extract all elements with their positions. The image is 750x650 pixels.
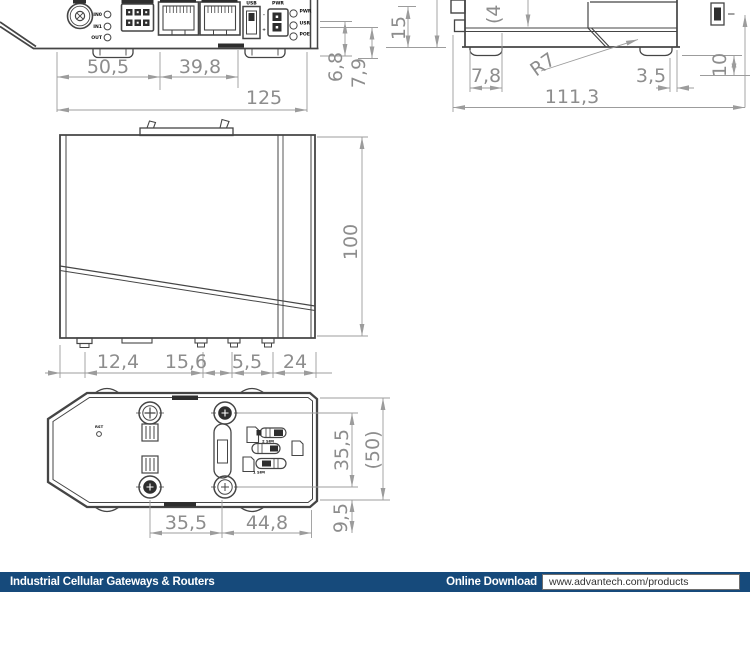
usb-port: USB — [243, 1, 260, 39]
vent-grilles — [142, 424, 158, 473]
dim-side-foot-right: 3,5 — [636, 65, 666, 87]
usb-port-label: USB — [246, 1, 257, 7]
screw-bottom-left — [139, 476, 161, 498]
sim-card-icon — [292, 441, 303, 456]
dim-front-total: 125 — [246, 87, 282, 109]
reset-button: RST — [95, 424, 104, 436]
dim-top-seg1: 12,4 — [97, 351, 139, 373]
center-slot — [214, 424, 231, 478]
bottom-slot — [218, 44, 244, 48]
top-view: 100 12,4 15,6 5,5 24 — [45, 120, 368, 379]
screw-top-left — [139, 402, 161, 424]
dim-bottom-screws-h1: 35,5 — [165, 512, 207, 534]
dim-bottom-screws-v: 35,5 — [331, 429, 353, 471]
rubber-feet-bumps — [95, 389, 264, 512]
dim-top-height: 100 — [340, 224, 362, 260]
top-view-bottom-stubs — [77, 338, 274, 348]
dim-top-seg2: 15,6 — [165, 351, 207, 373]
screw-bottom-right — [214, 476, 236, 498]
dim-front-h2: 7,9 — [348, 58, 370, 88]
port-label-strip — [73, 0, 86, 4]
front-foot-right — [245, 49, 285, 58]
reset-label: RST — [95, 424, 104, 429]
io-label-out: OUT — [91, 35, 103, 41]
dim-side-total: 111,3 — [545, 86, 599, 108]
led-label-poe: POE — [300, 32, 310, 38]
sim1-label: 1 SIM — [253, 470, 265, 475]
dim-front-seg2: 39,8 — [179, 56, 221, 78]
status-leds: PWR USR POE — [290, 9, 312, 41]
ethernet-port-eth0 — [159, 0, 199, 35]
antenna-connector — [68, 0, 93, 29]
dim-bottom-screws-h2: 44,8 — [246, 512, 288, 534]
footer-url-text: www.advantech.com/products — [543, 575, 739, 589]
dimension-drawing: IN0 IN1 OUT — [0, 0, 750, 650]
terminal-block-connector — [122, 0, 154, 31]
side-sim-slot-detail — [711, 3, 735, 25]
dim-front-h1: 6,8 — [325, 52, 347, 82]
label-bar-top — [172, 396, 198, 401]
ethernet-port-eth1 — [200, 0, 240, 35]
side-foot-left — [470, 47, 502, 56]
screw-top-right — [214, 402, 236, 424]
port-label-strip — [202, 0, 238, 3]
side-view-dimensions: (4 7,8 3,5 R7 111,3 10 — [453, 0, 750, 112]
dim-side-radius: R7 — [526, 49, 559, 82]
minus-mark: - — [263, 13, 265, 18]
din-rail-clip — [140, 120, 233, 136]
footer-series-title: Industrial Cellular Gateways & Routers — [10, 572, 215, 592]
dim-top-seg3: 5,5 — [232, 351, 262, 373]
dim-front-h3: 15 — [388, 16, 410, 40]
bottom-view: RST 2 SIM 1 SIM 35,5 (50) — [48, 389, 390, 539]
footer-download-label: Online Download — [446, 572, 537, 592]
side-view: (4 7,8 3,5 R7 111,3 10 — [451, 0, 750, 112]
footer-url-box: www.advantech.com/products — [542, 574, 740, 590]
dim-bottom-offset: 9,5 — [330, 503, 352, 533]
side-foot-right — [640, 47, 672, 56]
io-label-in1: IN1 — [93, 24, 102, 30]
power-label: PWR — [272, 1, 284, 7]
dim-top-seg4: 24 — [283, 351, 307, 373]
led-label-pwr: PWR — [300, 9, 312, 15]
front-view: IN0 IN1 OUT — [0, 0, 446, 112]
sim2-label: 2 SIM — [262, 439, 274, 444]
sim-card-area: 2 SIM 1 SIM — [243, 427, 303, 475]
led-label-usr: USR — [300, 21, 311, 27]
power-connector: - + PWR — [262, 1, 288, 37]
io-indicators: IN0 IN1 OUT — [91, 11, 111, 41]
side-connector-stub-top — [451, 0, 465, 13]
port-label-strip — [122, 0, 154, 4]
dim-side-height: 10 — [709, 53, 731, 77]
plus-mark: + — [262, 27, 266, 33]
port-label-strip — [160, 0, 196, 3]
dim-side-cut-top: (4 — [483, 4, 505, 24]
side-connector-stub-bottom — [455, 20, 466, 32]
dim-front-seg1: 50,5 — [87, 56, 129, 78]
dim-bottom-overall-v: (50) — [362, 430, 384, 469]
datasheet-dimension-drawing-page: IN0 IN1 OUT — [0, 0, 750, 650]
front-panel-right-edge — [311, 0, 318, 49]
front-panel-chamfer — [0, 22, 36, 49]
io-label-in0: IN0 — [93, 12, 102, 18]
dim-side-foot-left: 7,8 — [471, 65, 501, 87]
label-bar-bottom — [164, 502, 196, 507]
